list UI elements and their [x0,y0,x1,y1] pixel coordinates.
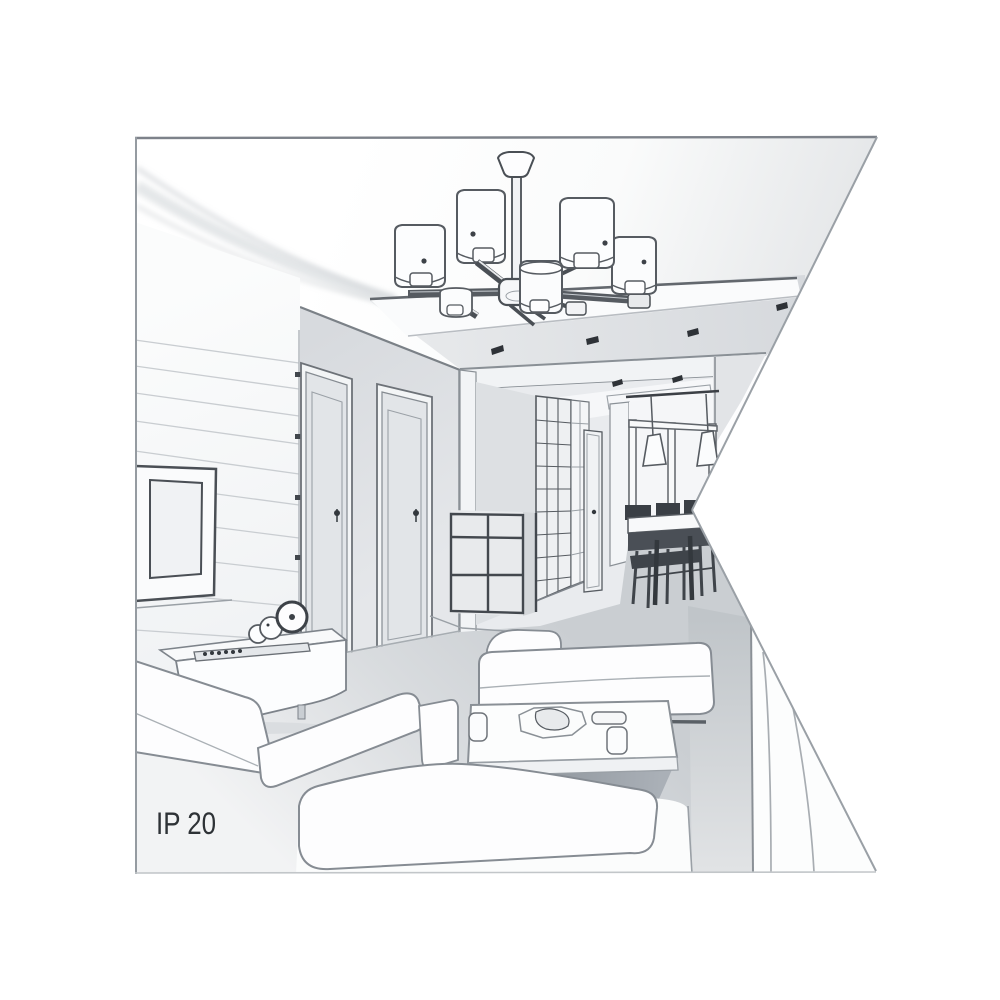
svg-text:IP 20: IP 20 [156,805,216,841]
